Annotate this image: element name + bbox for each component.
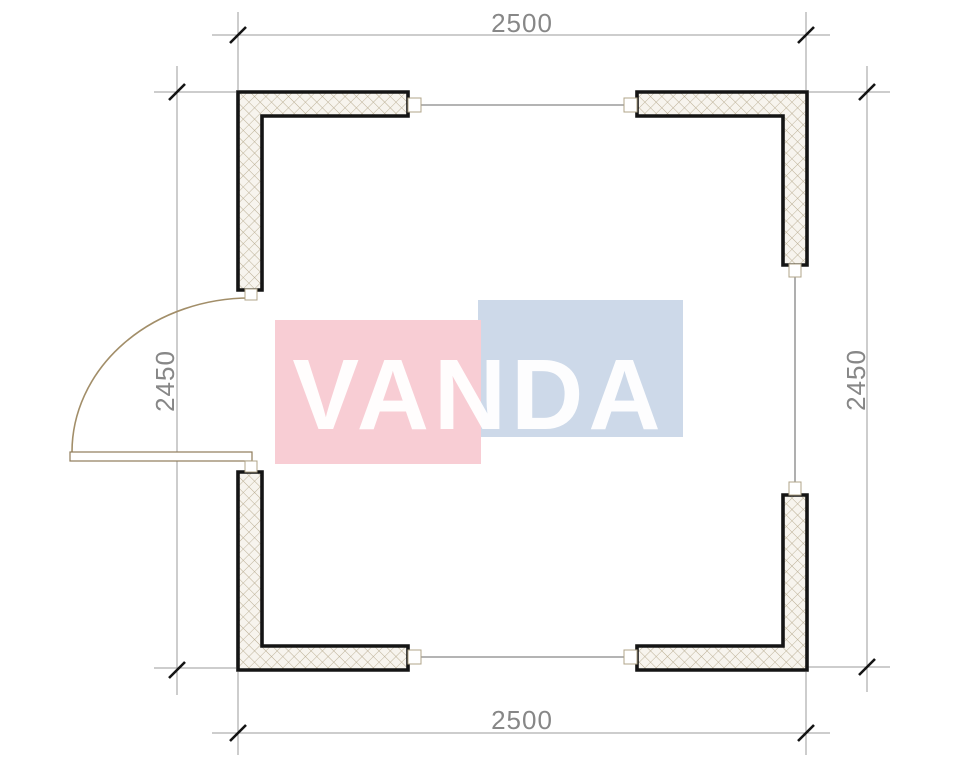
- dimension-label-left: 2450: [152, 350, 178, 412]
- wall-end-nubs: [245, 98, 801, 664]
- wall-top-left: [238, 92, 408, 290]
- dimension-label-bottom: 2500: [491, 707, 553, 733]
- floor-plan-page: VANDA: [0, 0, 960, 768]
- floor-plan-drawing: [0, 0, 960, 768]
- dimension-label-top: 2500: [491, 10, 553, 36]
- dimension-lines: [154, 12, 890, 755]
- opening-connectors: [421, 105, 795, 657]
- wall-top-right: [637, 92, 807, 265]
- dimension-ticks: [169, 27, 875, 741]
- dimension-label-right: 2450: [843, 349, 869, 411]
- walls: [238, 92, 807, 670]
- door-leaf: [70, 452, 252, 461]
- wall-bottom-right: [637, 495, 807, 670]
- wall-bottom-left: [238, 472, 408, 670]
